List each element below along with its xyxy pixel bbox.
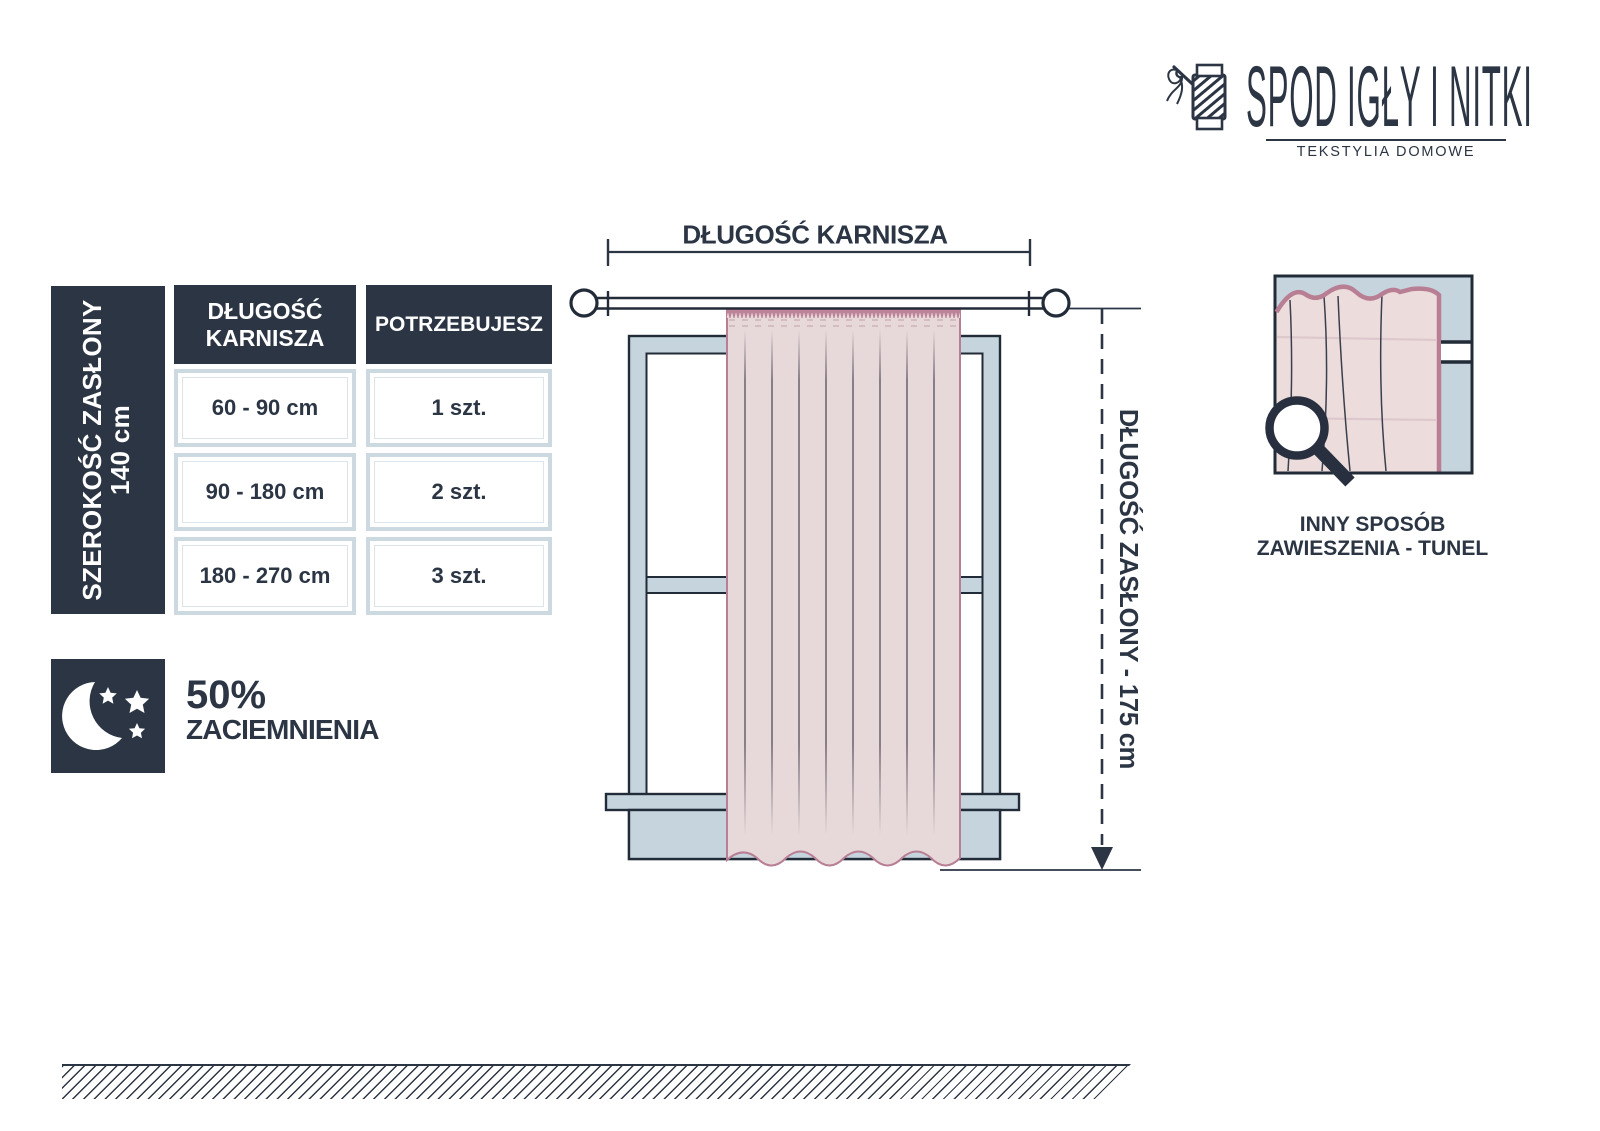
svg-text:DŁUGOŚĆ KARNISZA: DŁUGOŚĆ KARNISZA: [682, 220, 948, 250]
svg-text:DŁUGOŚĆ ZASŁONY - 175 cm: DŁUGOŚĆ ZASŁONY - 175 cm: [1114, 409, 1144, 769]
